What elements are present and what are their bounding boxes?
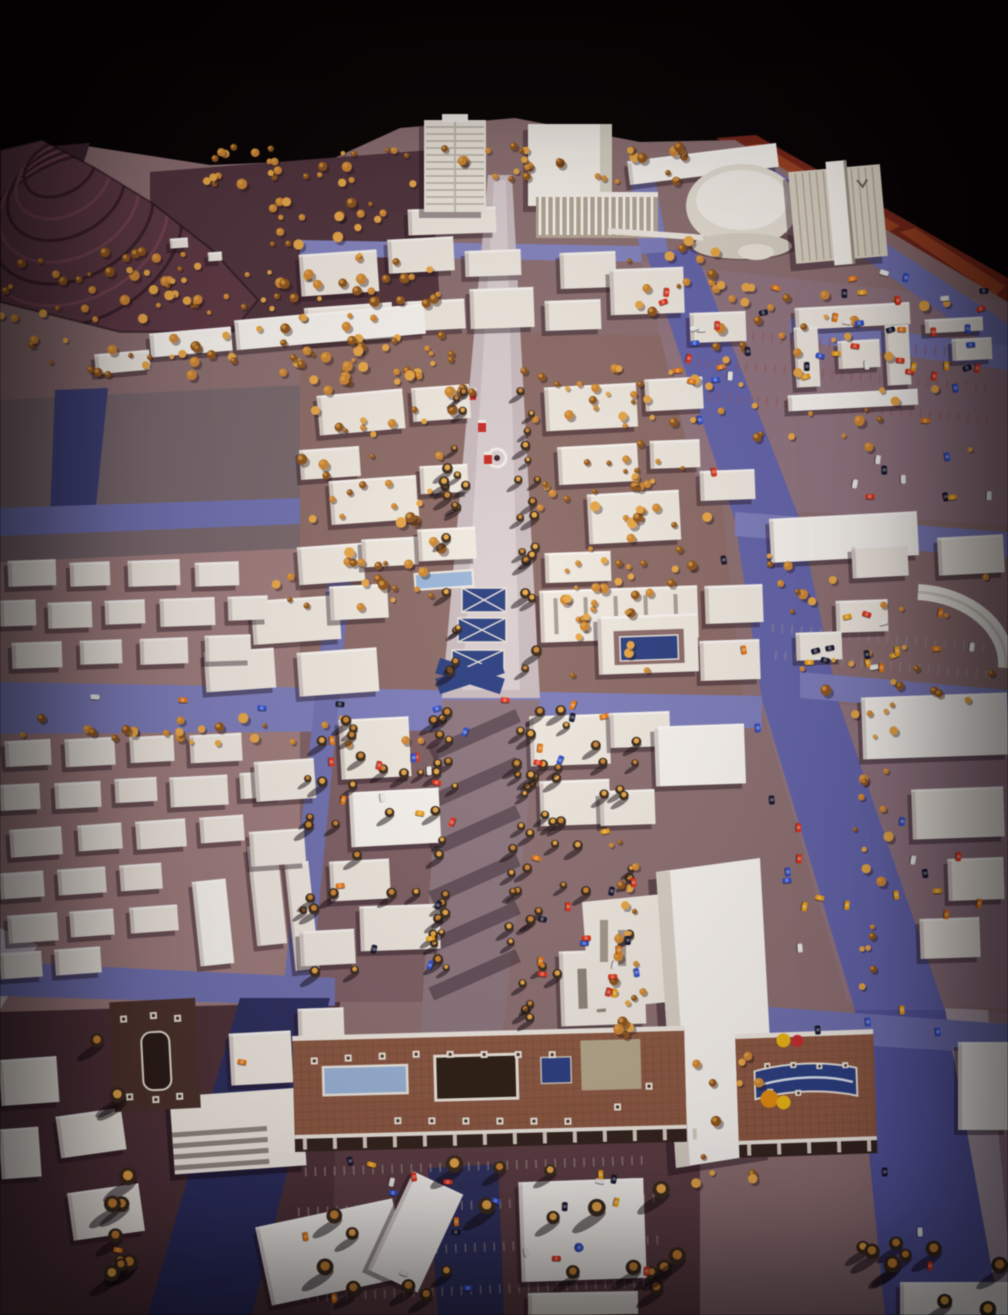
building <box>0 1127 42 1185</box>
architectural-model-photo <box>0 0 1008 1315</box>
building <box>383 236 455 279</box>
building <box>66 561 111 592</box>
building <box>954 1042 1008 1135</box>
building <box>131 818 187 855</box>
roof-box <box>580 1039 641 1091</box>
car <box>608 974 617 980</box>
building <box>553 443 639 490</box>
building <box>224 595 269 626</box>
swimming-pool <box>323 1065 408 1095</box>
car <box>921 869 928 879</box>
car <box>335 883 345 890</box>
car <box>881 466 887 475</box>
building <box>943 857 1005 906</box>
building <box>0 599 37 631</box>
car <box>933 888 942 894</box>
building <box>51 1108 127 1164</box>
car <box>453 1217 459 1226</box>
car <box>898 817 905 827</box>
car <box>663 288 670 297</box>
car <box>966 342 975 349</box>
screen-wall-building <box>782 157 889 271</box>
building <box>201 634 252 667</box>
car <box>711 377 721 384</box>
car <box>932 646 941 652</box>
car <box>90 694 99 701</box>
car <box>536 743 543 753</box>
car <box>850 343 860 350</box>
building <box>847 544 909 584</box>
building <box>650 723 746 791</box>
building <box>65 908 115 942</box>
building <box>101 599 146 630</box>
building <box>325 584 389 626</box>
building <box>50 781 102 815</box>
car <box>900 475 906 484</box>
car <box>784 867 791 876</box>
car <box>814 1025 821 1034</box>
building <box>8 641 63 674</box>
car <box>897 327 906 333</box>
building <box>947 337 992 366</box>
building <box>921 316 984 338</box>
car <box>796 943 803 952</box>
car <box>597 1170 603 1179</box>
car <box>985 491 991 500</box>
pool-complex-main <box>292 1025 697 1151</box>
building <box>933 534 1005 581</box>
building <box>156 597 216 632</box>
building <box>225 1030 294 1090</box>
building <box>3 912 59 949</box>
car <box>410 753 416 762</box>
building <box>0 1056 60 1111</box>
building <box>195 814 245 848</box>
car <box>943 361 949 370</box>
car <box>690 340 700 347</box>
car <box>881 1167 887 1176</box>
car <box>443 1179 452 1185</box>
car <box>979 288 988 294</box>
car <box>463 1285 472 1291</box>
car <box>976 899 983 909</box>
car <box>328 736 335 746</box>
building <box>695 469 755 506</box>
car <box>894 296 901 306</box>
building <box>5 826 63 863</box>
car <box>379 793 386 803</box>
car <box>726 371 732 380</box>
pool-complex-motel <box>735 1029 877 1158</box>
building <box>915 917 981 964</box>
car <box>878 663 884 672</box>
building <box>0 951 43 985</box>
car <box>832 351 841 357</box>
car <box>388 1190 398 1197</box>
building <box>76 639 123 670</box>
car <box>855 320 865 327</box>
car <box>863 360 870 369</box>
building <box>0 783 41 816</box>
building <box>136 637 189 670</box>
car <box>926 1261 932 1270</box>
tower-grid <box>419 114 486 218</box>
car <box>805 660 814 666</box>
car <box>843 900 850 910</box>
car <box>561 1202 567 1211</box>
city-model-scene <box>0 0 1008 1315</box>
building <box>295 929 356 972</box>
car <box>968 642 975 652</box>
car <box>630 878 637 888</box>
car <box>796 854 802 863</box>
car <box>874 455 881 465</box>
car <box>744 347 751 357</box>
car <box>500 697 509 704</box>
car <box>538 971 548 978</box>
building <box>461 249 522 282</box>
roof-courtyard <box>435 1054 518 1100</box>
building <box>695 639 761 686</box>
car <box>768 795 775 804</box>
car <box>537 957 543 966</box>
car <box>673 368 682 375</box>
car <box>714 321 720 330</box>
building <box>540 299 601 336</box>
building <box>857 692 1008 764</box>
car <box>921 418 930 424</box>
car <box>615 945 622 954</box>
building <box>50 946 102 980</box>
building <box>53 866 107 901</box>
building <box>605 267 685 321</box>
building <box>524 1291 638 1315</box>
car <box>624 936 631 946</box>
car <box>178 697 187 704</box>
building <box>0 739 52 773</box>
car <box>328 757 335 766</box>
small-pool <box>541 1057 572 1084</box>
car <box>330 1293 337 1302</box>
building <box>115 863 163 897</box>
building <box>540 551 611 588</box>
car <box>754 723 761 732</box>
car <box>898 1005 905 1014</box>
building <box>0 870 45 904</box>
car <box>864 1017 871 1026</box>
building <box>73 822 123 856</box>
building <box>110 777 157 808</box>
car <box>940 296 949 303</box>
building <box>646 439 701 474</box>
car <box>964 324 970 333</box>
car <box>857 290 866 296</box>
building <box>125 735 175 768</box>
dome-building <box>684 164 800 260</box>
building <box>4 559 57 592</box>
car <box>565 902 571 911</box>
car <box>895 358 904 365</box>
car <box>804 362 810 371</box>
building <box>124 559 181 592</box>
car <box>335 701 344 708</box>
car <box>782 877 791 884</box>
car <box>948 494 958 501</box>
car <box>451 1229 460 1235</box>
building <box>540 383 638 437</box>
car <box>257 705 266 712</box>
car <box>795 823 801 832</box>
car <box>841 289 847 298</box>
car <box>643 1267 649 1276</box>
car <box>426 766 432 775</box>
building <box>125 904 179 939</box>
car <box>955 852 961 861</box>
building <box>465 287 535 334</box>
building <box>185 733 243 769</box>
building <box>60 737 116 773</box>
building <box>293 647 380 702</box>
building <box>312 388 406 441</box>
car <box>865 494 874 500</box>
building <box>789 326 820 392</box>
car <box>916 1227 922 1236</box>
car <box>934 1027 941 1036</box>
building <box>907 786 1005 844</box>
car <box>582 935 591 942</box>
car <box>893 646 900 656</box>
car <box>892 890 899 900</box>
building <box>44 601 93 634</box>
car <box>552 1256 561 1262</box>
building <box>191 561 240 592</box>
car <box>930 327 936 336</box>
building <box>165 775 229 813</box>
building <box>245 828 307 872</box>
building <box>700 584 763 629</box>
car <box>974 363 981 373</box>
